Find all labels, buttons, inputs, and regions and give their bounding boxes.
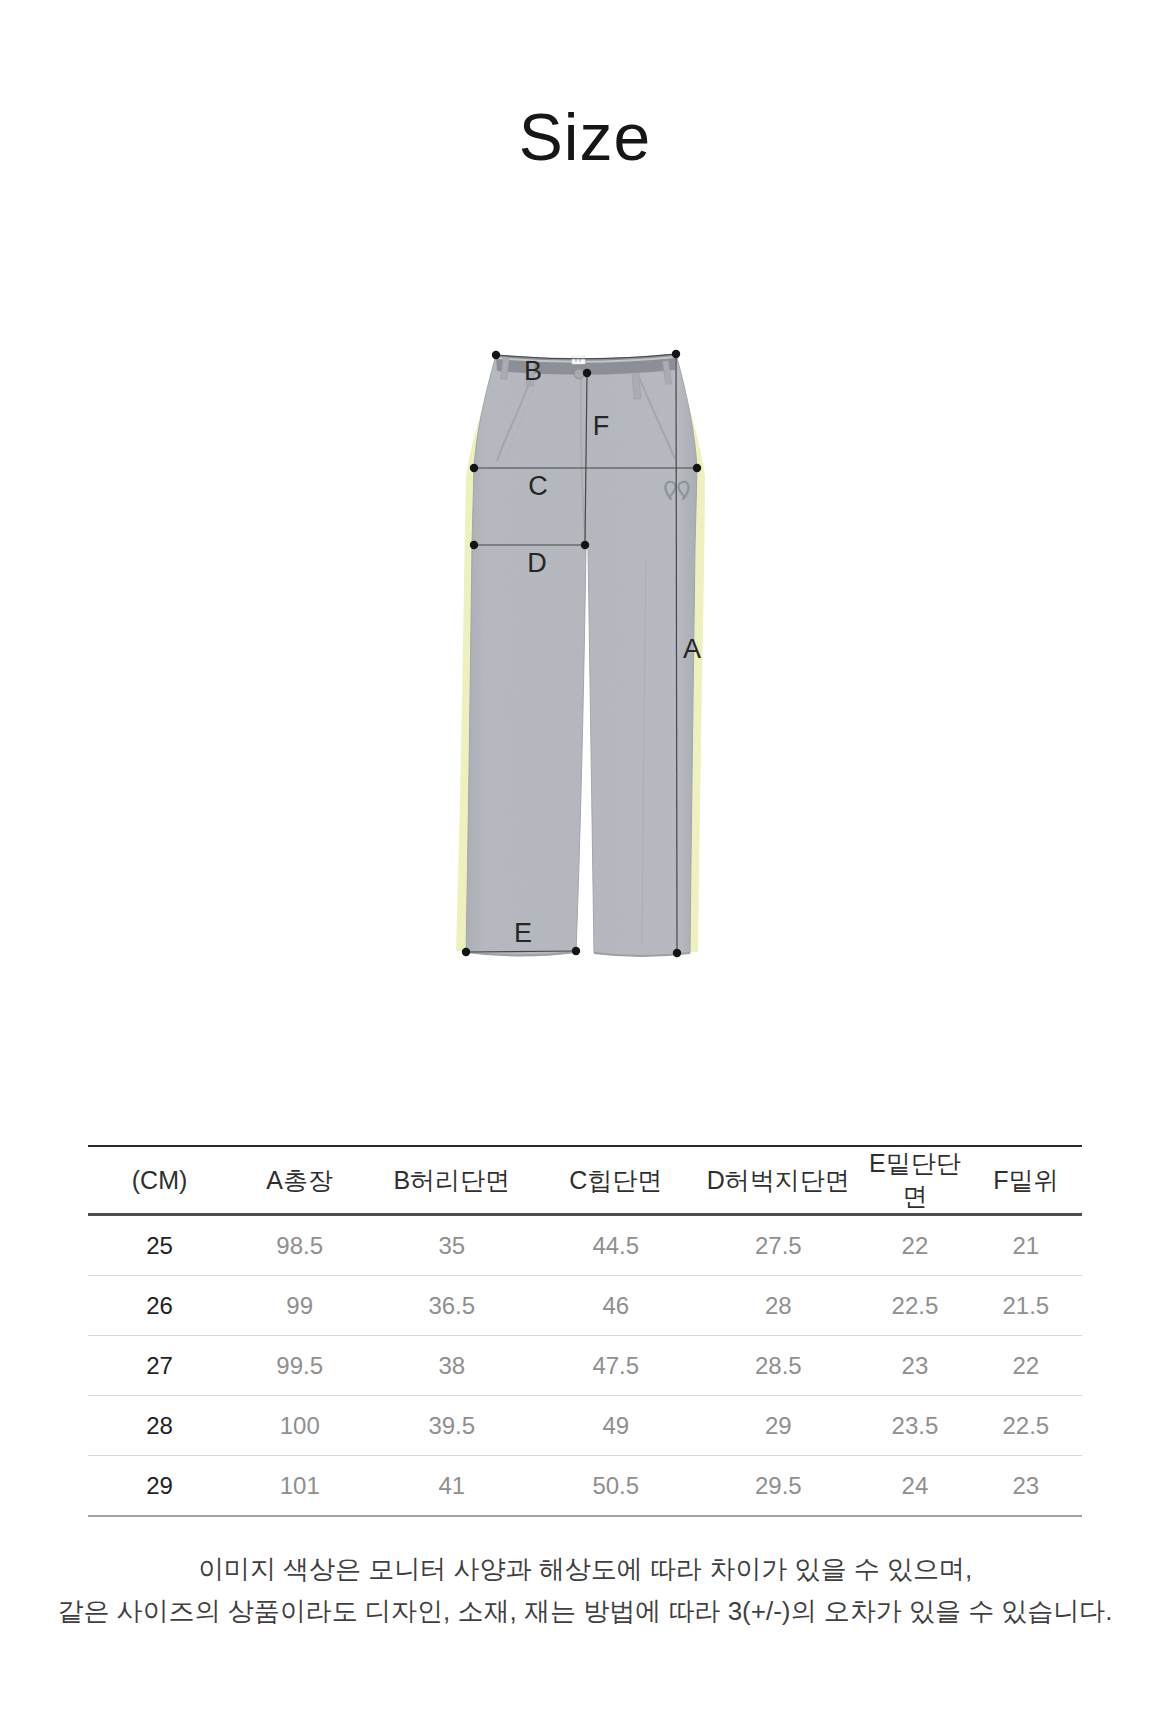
col-header-unit: (CM) [88,1146,231,1215]
measurement-value: 101 [231,1456,368,1517]
measure-dot [470,541,478,549]
measurement-value: 100 [231,1396,368,1456]
table-row-size-25: 25 98.5 35 44.5 27.5 22 21 [88,1215,1082,1276]
size-value: 27 [88,1336,231,1396]
measure-dot [672,350,680,358]
measurement-value: 36.5 [368,1276,535,1336]
col-header-thigh: D허벅지단면 [696,1146,860,1215]
measurement-value: 22 [860,1215,969,1276]
measurement-value: 21 [970,1215,1082,1276]
col-header-waist: B허리단면 [368,1146,535,1215]
measurement-value: 23.5 [860,1396,969,1456]
label-total-length: A [683,634,701,664]
measurement-value: 24 [860,1456,969,1517]
measurement-value: 22.5 [970,1396,1082,1456]
measure-dot [581,541,589,549]
belt-loop [632,374,641,399]
col-header-total-length: A총장 [231,1146,368,1215]
measure-dot [673,949,681,957]
disclaimer-line-2: 같은 사이즈의 상품이라도 디자인, 소재, 재는 방법에 따라 3(+/-)의… [0,1590,1170,1632]
size-value: 25 [88,1215,231,1276]
measurement-value: 49 [535,1396,696,1456]
measurement-value: 21.5 [970,1276,1082,1336]
measurement-value: 27.5 [696,1215,860,1276]
measure-dot [470,464,478,472]
table-row-size-29: 29 101 41 50.5 29.5 24 23 [88,1456,1082,1517]
col-header-hip: C힙단면 [535,1146,696,1215]
measurement-value: 22.5 [860,1276,969,1336]
label-hem: E [514,918,532,948]
table-row-size-26: 26 99 36.5 46 28 22.5 21.5 [88,1276,1082,1336]
measurement-value: 47.5 [535,1336,696,1396]
measurement-value: 29 [696,1396,860,1456]
measurement-value: 28 [696,1276,860,1336]
measurement-value: 41 [368,1456,535,1517]
size-table-header-row: (CM) A총장 B허리단면 C힙단면 D허벅지단면 E밑단단면 F밑위 [88,1146,1082,1215]
measurement-value: 22 [970,1336,1082,1396]
measure-dot [572,947,580,955]
measurement-value: 99.5 [231,1336,368,1396]
waistband-tag [572,356,585,364]
measurement-value: 44.5 [535,1215,696,1276]
measurement-value: 98.5 [231,1215,368,1276]
measure-dot [693,464,701,472]
measurement-value: 99 [231,1276,368,1336]
measurement-value: 28.5 [696,1336,860,1396]
size-value: 28 [88,1396,231,1456]
measurement-value: 46 [535,1276,696,1336]
table-row-size-27: 27 99.5 38 47.5 28.5 23 22 [88,1336,1082,1396]
size-value: 29 [88,1456,231,1517]
pants-measurement-diagram: B F C D A E [430,320,730,980]
page-title: Size [0,104,1170,170]
size-table: (CM) A총장 B허리단면 C힙단면 D허벅지단면 E밑단단면 F밑위 25 … [88,1145,1082,1517]
table-row-size-28: 28 100 39.5 49 29 23.5 22.5 [88,1396,1082,1456]
col-header-rise: F밑위 [970,1146,1082,1215]
size-guide-page: Size [0,0,1170,1730]
measurement-value: 23 [860,1336,969,1396]
label-thigh: D [527,548,547,578]
disclaimer: 이미지 색상은 모니터 사양과 해상도에 따라 차이가 있을 수 있으며, 같은… [0,1548,1170,1632]
measure-dot [462,948,470,956]
measurement-value: 35 [368,1215,535,1276]
measurement-value: 38 [368,1336,535,1396]
waist-button [574,369,584,379]
disclaimer-line-1: 이미지 색상은 모니터 사양과 해상도에 따라 차이가 있을 수 있으며, [0,1548,1170,1590]
size-value: 26 [88,1276,231,1336]
measurement-value: 29.5 [696,1456,860,1517]
measurement-value: 50.5 [535,1456,696,1517]
col-header-hem: E밑단단면 [860,1146,969,1215]
measure-dot [492,351,500,359]
label-hip: C [528,471,548,501]
measurement-value: 23 [970,1456,1082,1517]
measure-dot [583,369,591,377]
label-rise: F [593,411,610,441]
measurement-value: 39.5 [368,1396,535,1456]
label-waist: B [524,356,542,386]
